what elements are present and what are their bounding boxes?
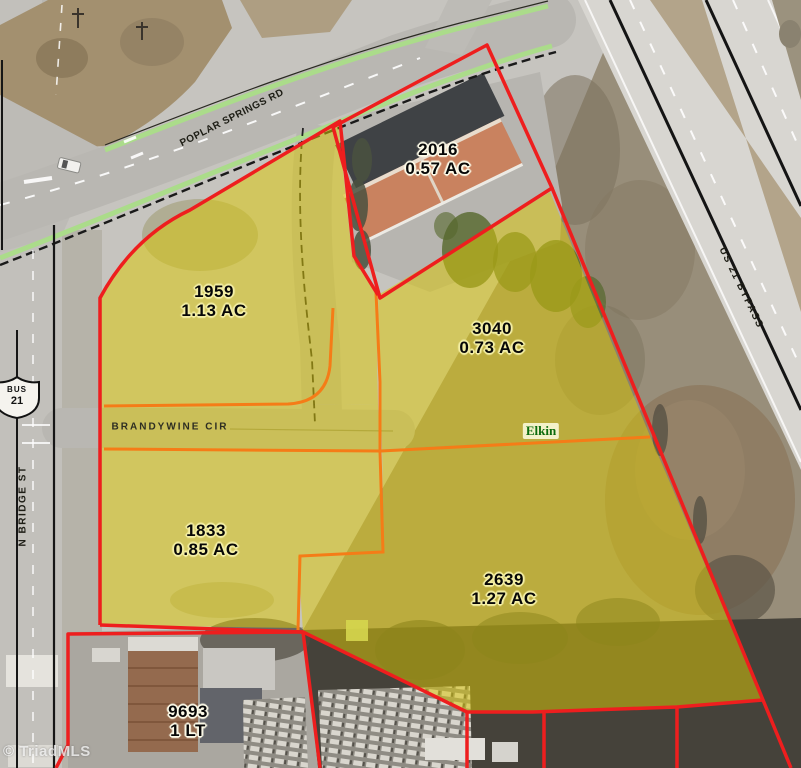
listing-map-image[interactable]: 2016 0.57 AC 1959 1.13 AC 3040 0.73 AC 1… <box>0 0 801 768</box>
parcel-number: 2639 <box>471 570 536 589</box>
route-shield-bus-21: BUS 21 <box>0 374 41 421</box>
parcel-area: 1.27 AC <box>471 589 536 608</box>
parcel-number: 3040 <box>459 319 524 338</box>
building-small <box>92 648 120 662</box>
road-label-n-bridge: N BRIDGE ST <box>18 466 29 547</box>
building-white <box>6 655 58 687</box>
parcel-number: 2016 <box>405 140 470 159</box>
parcel-area: 1.13 AC <box>181 301 246 320</box>
building-white <box>492 742 518 762</box>
parcel-area: 0.57 AC <box>405 159 470 178</box>
parcel-label-2016: 2016 0.57 AC <box>405 140 470 178</box>
aerial-map-graphics <box>0 0 801 768</box>
dirt-dark-patch <box>36 38 88 78</box>
parcel-number: 9693 <box>168 702 208 721</box>
tree-blob <box>434 212 458 240</box>
parcel-number: 1959 <box>181 282 246 301</box>
bright-grass-patch <box>346 620 368 641</box>
route-shield-number: 21 <box>0 396 41 407</box>
building-white <box>425 738 485 760</box>
tree-blob <box>779 20 801 48</box>
parcel-label-1959: 1959 1.13 AC <box>181 282 246 320</box>
parcel-label-3040: 3040 0.73 AC <box>459 319 524 357</box>
building-gray <box>203 648 275 690</box>
tree-blob <box>352 138 372 182</box>
city-label-elkin: Elkin <box>523 423 559 439</box>
parcel-area: 0.73 AC <box>459 338 524 357</box>
parcel-number: 1833 <box>173 521 238 540</box>
warehouse-roof-white <box>128 637 198 651</box>
junkyard-cars <box>243 697 308 768</box>
mls-watermark: © TriadMLS <box>3 743 91 760</box>
parcel-label-1833: 1833 0.85 AC <box>173 521 238 559</box>
road-label-brandywine: BRANDYWINE CIR <box>112 422 229 433</box>
parcel-area: 1 LT <box>168 721 208 740</box>
dirt-dark-patch <box>120 18 184 66</box>
route-shield-banner: BUS <box>0 386 41 394</box>
parcel-label-2639: 2639 1.27 AC <box>471 570 536 608</box>
parcel-area: 0.85 AC <box>173 540 238 559</box>
parcel-label-9693: 9693 1 LT <box>168 702 208 740</box>
